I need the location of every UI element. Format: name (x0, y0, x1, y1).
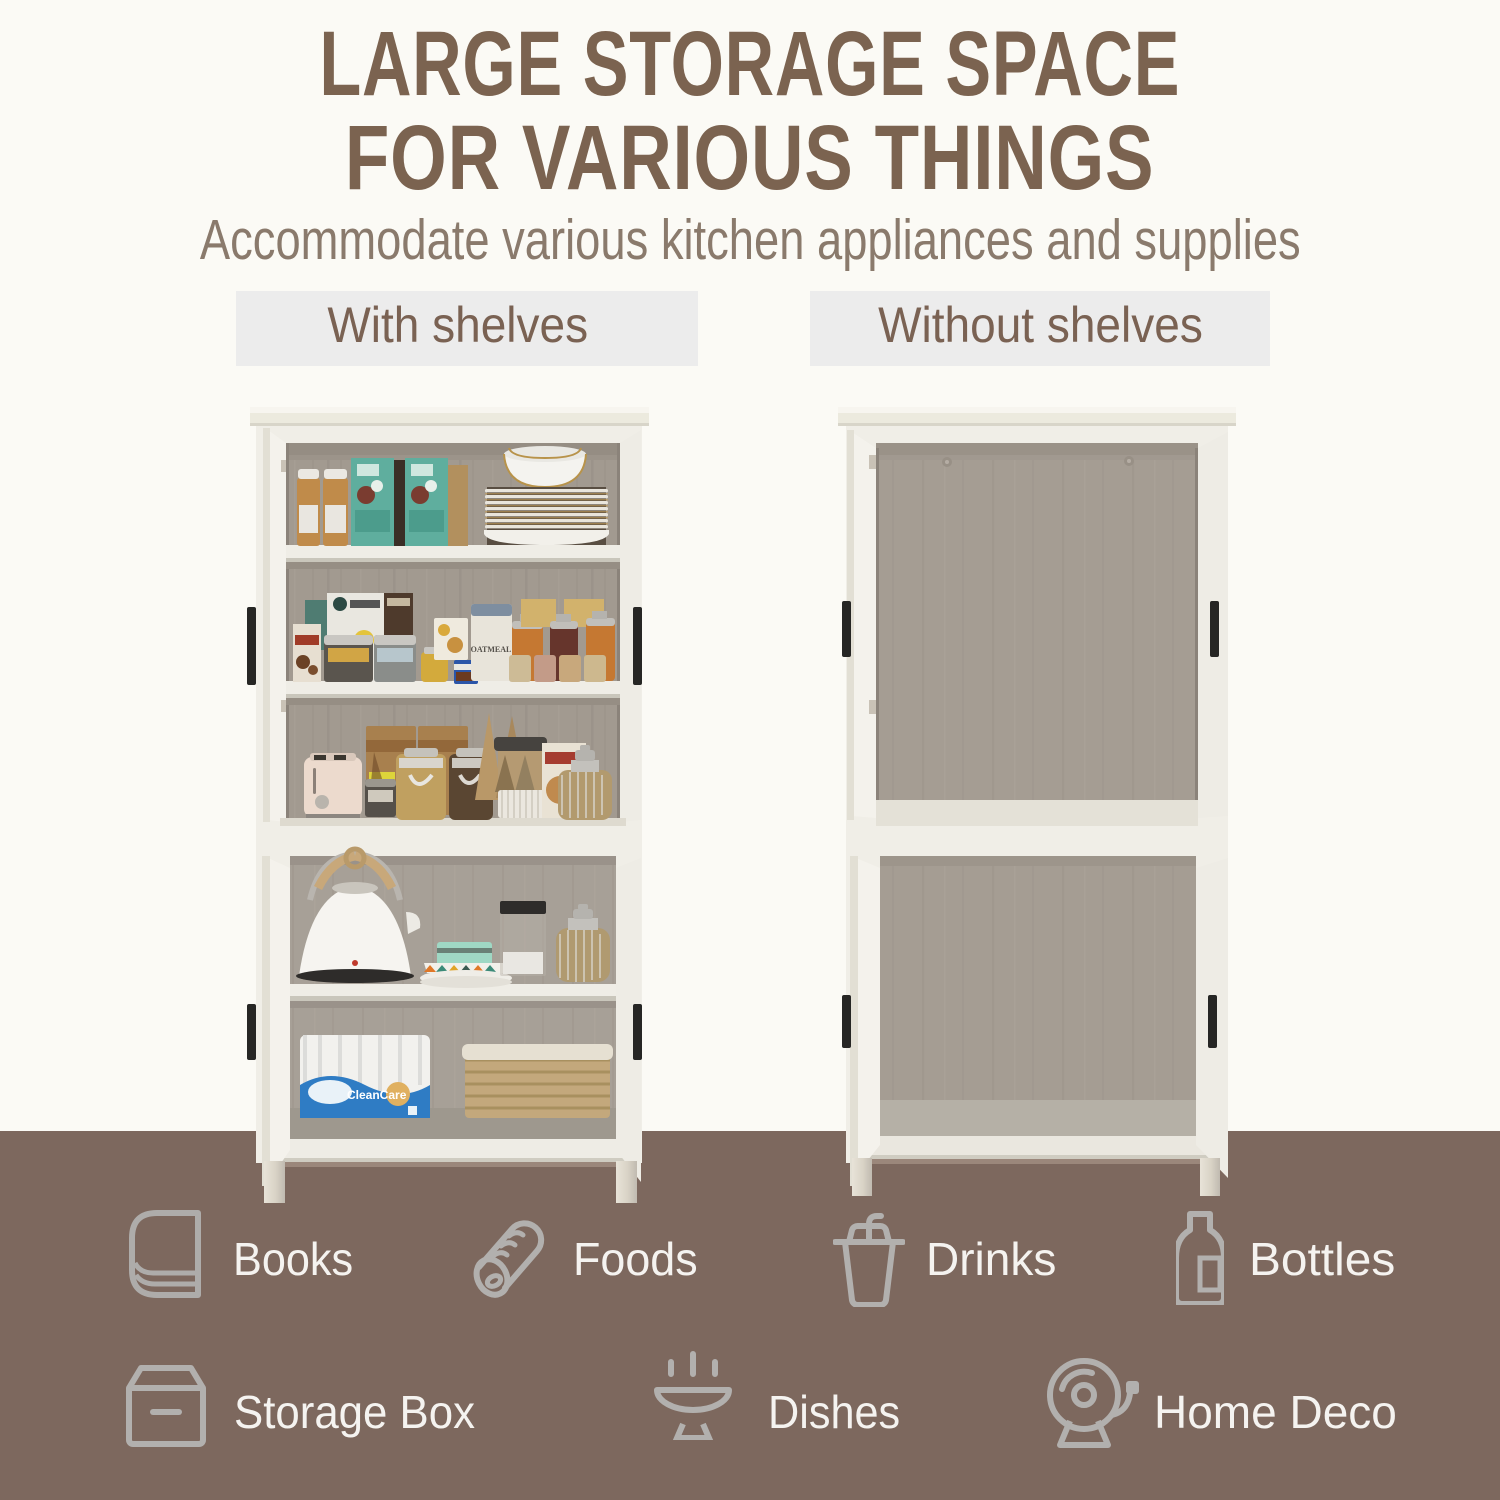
svg-text:OATMEAL: OATMEAL (471, 645, 512, 654)
svg-text:CleanCare: CleanCare (347, 1088, 407, 1102)
